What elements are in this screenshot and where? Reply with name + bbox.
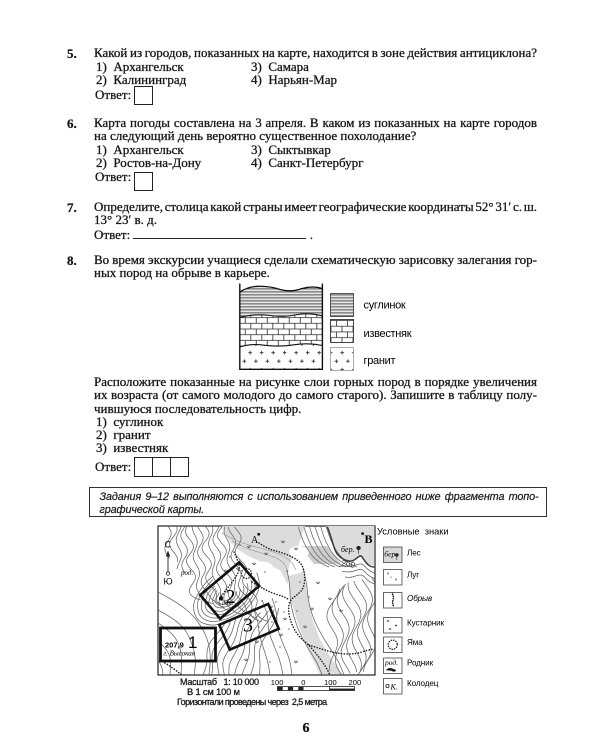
svg-text:Обрыв: Обрыв	[407, 594, 432, 603]
svg-text:Кустарник: Кустарник	[407, 619, 445, 628]
svg-text:род.: род.	[180, 569, 193, 577]
svg-text:гранит: гранит	[364, 355, 396, 367]
svg-text:К.: К.	[390, 683, 398, 692]
svg-text:200: 200	[349, 678, 362, 687]
svg-text:Условные знаки: Условные знаки	[377, 527, 449, 537]
svg-text:100: 100	[324, 678, 337, 687]
svg-text:В: В	[365, 532, 373, 546]
svg-text:0: 0	[301, 678, 305, 687]
svg-text:С: С	[165, 540, 172, 550]
svg-text:Лес: Лес	[407, 549, 421, 558]
svg-text:3: 3	[243, 615, 253, 637]
svg-text:207,9: 207,9	[165, 641, 184, 650]
svg-text:Родник: Родник	[407, 659, 434, 668]
svg-text:известняк: известняк	[364, 328, 412, 340]
svg-text:род.: род.	[384, 658, 398, 667]
svg-text:Яма: Яма	[407, 638, 423, 647]
svg-text:дом.: дом.	[222, 600, 233, 607]
svg-text:Колодец: Колодец	[407, 679, 439, 688]
svg-text:Луг: Луг	[407, 571, 419, 580]
svg-text:г. Высокая: г. Высокая	[164, 650, 195, 658]
svg-text:А: А	[251, 535, 259, 546]
svg-text:100: 100	[271, 678, 284, 687]
svg-text:бер.: бер.	[341, 545, 355, 554]
svg-text:суглинок: суглинок	[364, 300, 406, 312]
svg-text:Ю: Ю	[164, 577, 173, 587]
